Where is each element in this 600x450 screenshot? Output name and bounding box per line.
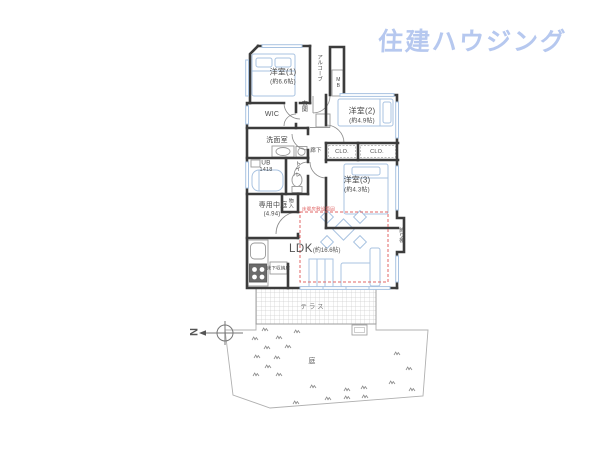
floor-heating-note: 床暖房敷設範囲	[302, 206, 335, 211]
room-label-washroom: 洗面室	[266, 137, 288, 145]
room-size-bath: 1418	[259, 167, 272, 173]
closet1-label: CLO.	[335, 148, 349, 154]
room-label-entrance: 玄関	[300, 100, 307, 112]
ldk-name: LDK	[289, 243, 313, 255]
floorplan-page: 住建ハウジング 洋室(1) (約6.6帖) 洋室(2) (約4.9帖) 洋室(3…	[0, 0, 600, 450]
floorplan-drawing	[0, 0, 600, 450]
room-size-bedroom1: (約6.6帖)	[270, 80, 296, 87]
compass-north-label: N	[187, 328, 199, 336]
closet2-label: CLO.	[370, 148, 384, 154]
garden-label: 庭	[308, 358, 315, 366]
ldk-size: (約16.6帖)	[313, 248, 341, 254]
room-label-bedroom1: 洋室(1)	[270, 69, 297, 78]
garden-area	[225, 324, 428, 408]
storage-label: 物入	[287, 198, 293, 208]
terrace-label: テラス	[300, 303, 325, 310]
room-label-hallway: 廊下	[310, 148, 321, 154]
room-label-alcove: アルコーブ	[316, 54, 322, 82]
room-label-ldk: LDK(約16.6帖)	[289, 239, 341, 257]
room-size-bedroom2: (約4.9帖)	[349, 119, 375, 126]
room-label-meter-box: MB	[335, 77, 341, 89]
room-label-bath: UB	[261, 159, 270, 166]
room-label-wic: WIC	[265, 111, 279, 119]
company-logo: 住建ハウジング	[377, 22, 568, 58]
room-size-courtyard: (4.94)	[264, 212, 281, 219]
room-label-toilet: トイレ	[294, 161, 300, 178]
room-label-bedroom3: 洋室(3)	[344, 177, 371, 186]
room-size-bedroom3: (約4.3帖)	[344, 188, 370, 195]
underfloor-storage-note: 床下収納庫	[267, 265, 291, 270]
room-label-bedroom2: 洋室(2)	[349, 108, 376, 117]
shelf-label: 飾り棚	[398, 228, 404, 243]
room-label-courtyard: 専用中庭	[259, 202, 288, 210]
